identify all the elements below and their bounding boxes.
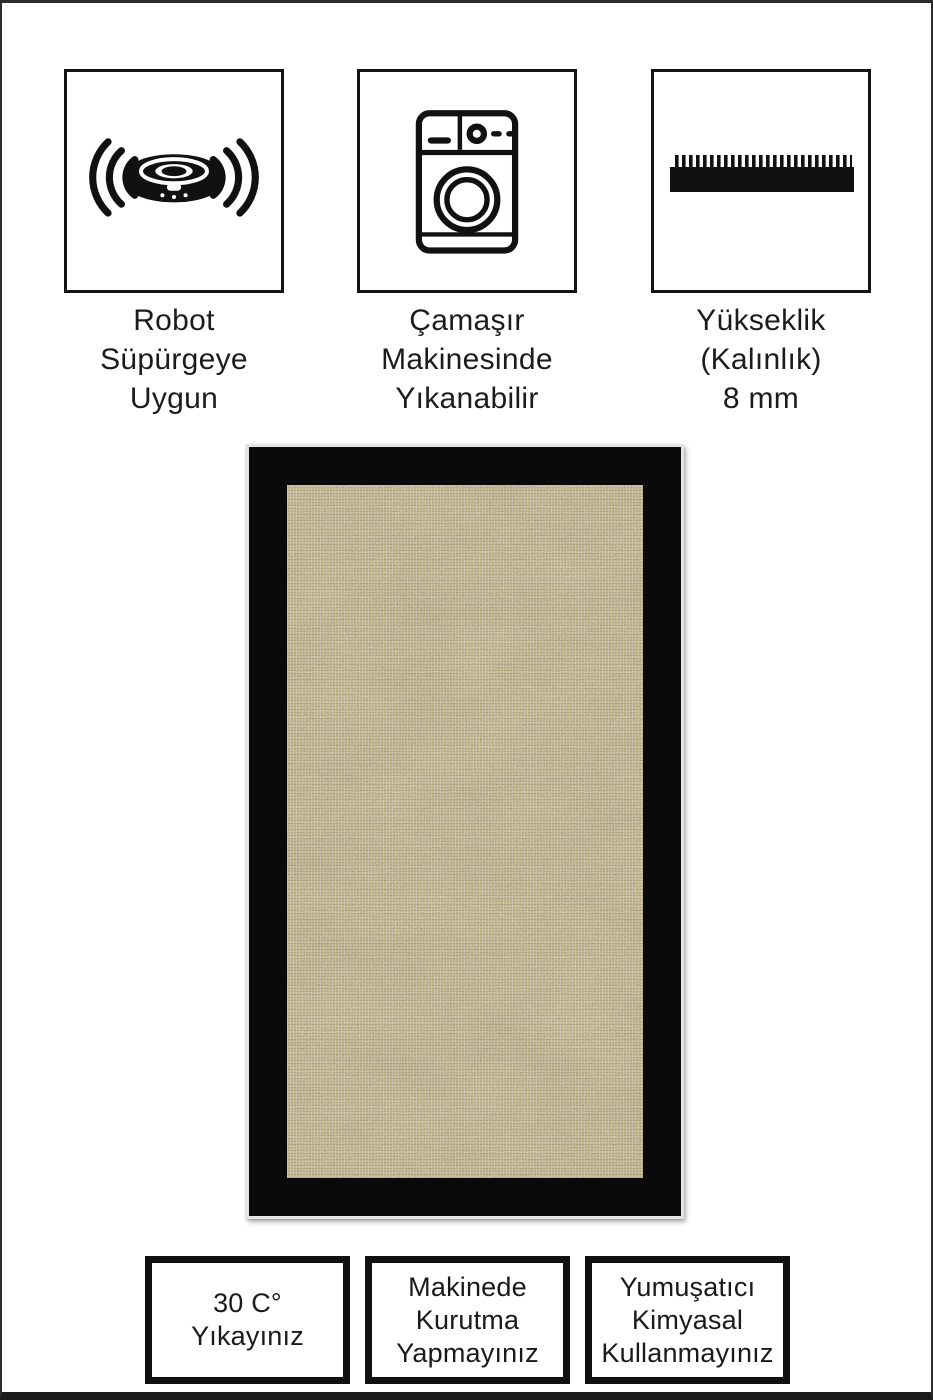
washing-machine-icon (369, 83, 565, 279)
care-box-no-machine-drying: Makinede Kurutma Yapmayınız (365, 1256, 570, 1384)
feature-pile-height: Yükseklik (Kalınlık) 8 mm (651, 69, 871, 418)
pile-height-icon (654, 72, 868, 290)
feature-label-pile-height: Yükseklik (Kalınlık) 8 mm (651, 301, 871, 418)
robot-vacuum-icon-box (64, 69, 284, 293)
rug-jute-field (287, 485, 643, 1178)
care-box-no-softener: Yumuşatıcı Kimyasal Kullanmayınız (585, 1256, 790, 1384)
feature-label-robot-vacuum: Robot Süpürgeye Uygun (64, 301, 284, 418)
rug-product-photo (246, 444, 684, 1219)
product-infographic: Robot Süpürgeye Uygun Çamaşır Makinesind… (0, 0, 933, 1400)
feature-machine-washable: Çamaşır Makinesinde Yıkanabilir (357, 69, 577, 418)
feature-label-machine-washable: Çamaşır Makinesinde Yıkanabilir (357, 301, 577, 418)
washing-machine-icon-box (357, 69, 577, 293)
robot-vacuum-icon (76, 83, 272, 279)
feature-robot-vacuum: Robot Süpürgeye Uygun (64, 69, 284, 418)
care-box-wash-30c: 30 C° Yıkayınız (145, 1256, 350, 1384)
pile-height-icon-box (651, 69, 871, 293)
jute-texture-coarse-noise (287, 485, 643, 1178)
